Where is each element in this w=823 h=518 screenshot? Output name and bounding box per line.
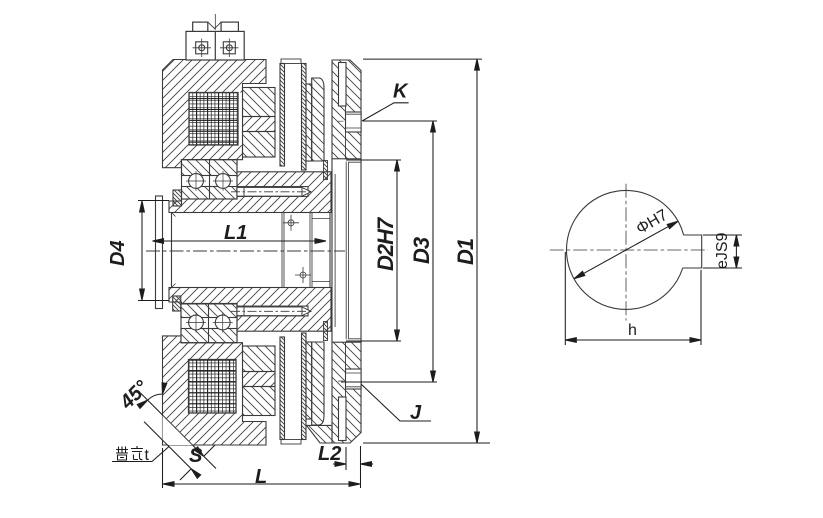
- svg-text:L1: L1: [224, 222, 247, 244]
- svg-text:D4: D4: [107, 240, 129, 266]
- svg-text:L2: L2: [318, 443, 341, 465]
- svg-text:S: S: [189, 445, 203, 467]
- svg-text:h: h: [628, 322, 637, 339]
- svg-text:D2H7: D2H7: [373, 216, 398, 271]
- svg-text:J: J: [410, 402, 422, 424]
- svg-text:D3: D3: [409, 237, 434, 264]
- svg-text:L: L: [255, 466, 267, 488]
- svg-text:eJS9: eJS9: [714, 232, 731, 269]
- svg-text:K: K: [393, 81, 409, 103]
- svg-text:D1: D1: [453, 238, 478, 265]
- svg-text:t: t: [145, 447, 150, 464]
